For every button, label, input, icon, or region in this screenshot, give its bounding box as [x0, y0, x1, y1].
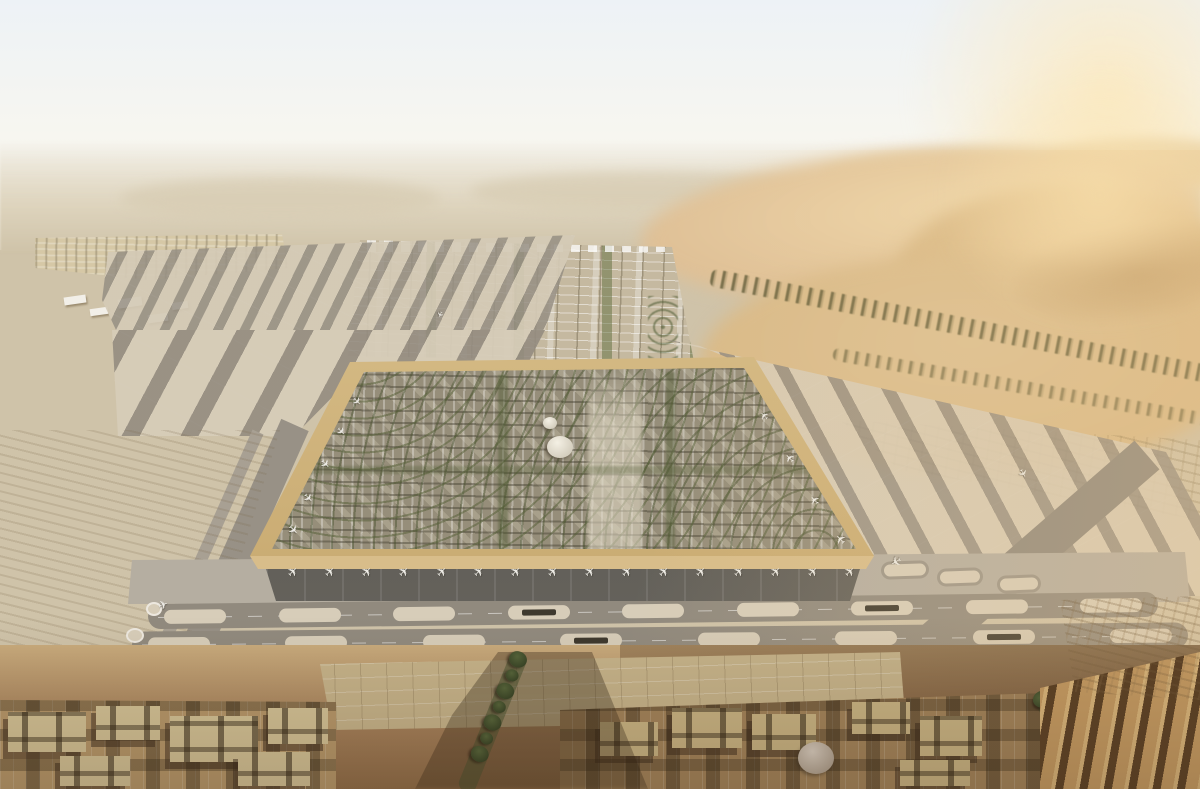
aircraft-icon: ✈	[693, 564, 710, 581]
runway-island	[622, 603, 684, 618]
foreground-dome	[798, 742, 834, 774]
aircraft-icon: ✈	[508, 564, 525, 581]
runway-island	[393, 606, 455, 621]
grand-dome	[547, 436, 573, 458]
aircraft-icon: ✈	[285, 564, 302, 581]
aircraft-icon: ✈	[545, 564, 562, 581]
grid-tree-edge	[648, 296, 678, 358]
distant-hill	[120, 178, 440, 220]
aircraft-icon: ✈	[396, 564, 413, 581]
tree-icon	[478, 730, 495, 746]
green-axis	[300, 466, 820, 474]
aircraft-icon: ✈	[805, 564, 822, 581]
courtyard-building	[8, 712, 86, 752]
circle-pad	[126, 628, 144, 643]
gate-aircraft-row: ✈ ✈✈✈✈✈✈✈✈✈✈✈✈✈✈✈	[288, 558, 856, 586]
aircraft-icon: ✈	[359, 564, 376, 581]
courtyard-building	[900, 760, 970, 786]
aircraft-icon: ✈	[582, 564, 599, 581]
courtyard-building	[96, 706, 160, 740]
hangar-building	[64, 295, 87, 306]
aircraft-icon: ✈	[768, 564, 785, 581]
aerial-airport-render: ✈ ✈✈✈✈✈✈✈✈✈✈✈✈✈✈✈ ✈ ✈ ✈ ✈ ✈ ✈ ✈ ✈ ✈ ✈ ✈ …	[0, 0, 1200, 789]
stand-oval	[940, 570, 980, 583]
green-axis	[666, 372, 675, 547]
runway-island	[507, 605, 569, 620]
aircraft-icon: ✈	[434, 564, 451, 581]
aircraft-icon: ✈	[471, 564, 488, 581]
runway-island	[851, 600, 913, 615]
runway-island	[965, 599, 1027, 614]
courtyard-building	[920, 716, 982, 756]
hangar-building	[90, 307, 109, 316]
runway-island	[736, 602, 798, 617]
green-axis	[498, 375, 508, 547]
courtyard-building	[852, 702, 910, 734]
stand-oval	[1000, 577, 1038, 590]
courtyard-building	[60, 756, 130, 786]
runway-island	[835, 631, 897, 646]
courtyard-building	[268, 708, 328, 744]
tree-icon	[503, 667, 520, 683]
courtyard-building	[238, 752, 310, 786]
stand-oval	[884, 563, 926, 576]
runway-island	[972, 630, 1034, 645]
aircraft-icon: ✈	[731, 564, 748, 581]
courtyard-building	[672, 708, 742, 748]
aircraft-icon: ✈	[656, 564, 673, 581]
aircraft-icon: ✈	[619, 564, 636, 581]
runway-island	[164, 609, 226, 624]
central-plaza	[588, 372, 642, 550]
runway-island	[278, 607, 340, 622]
tree-icon	[491, 699, 508, 715]
small-dome	[543, 417, 557, 429]
aircraft-icon: ✈	[322, 564, 339, 581]
